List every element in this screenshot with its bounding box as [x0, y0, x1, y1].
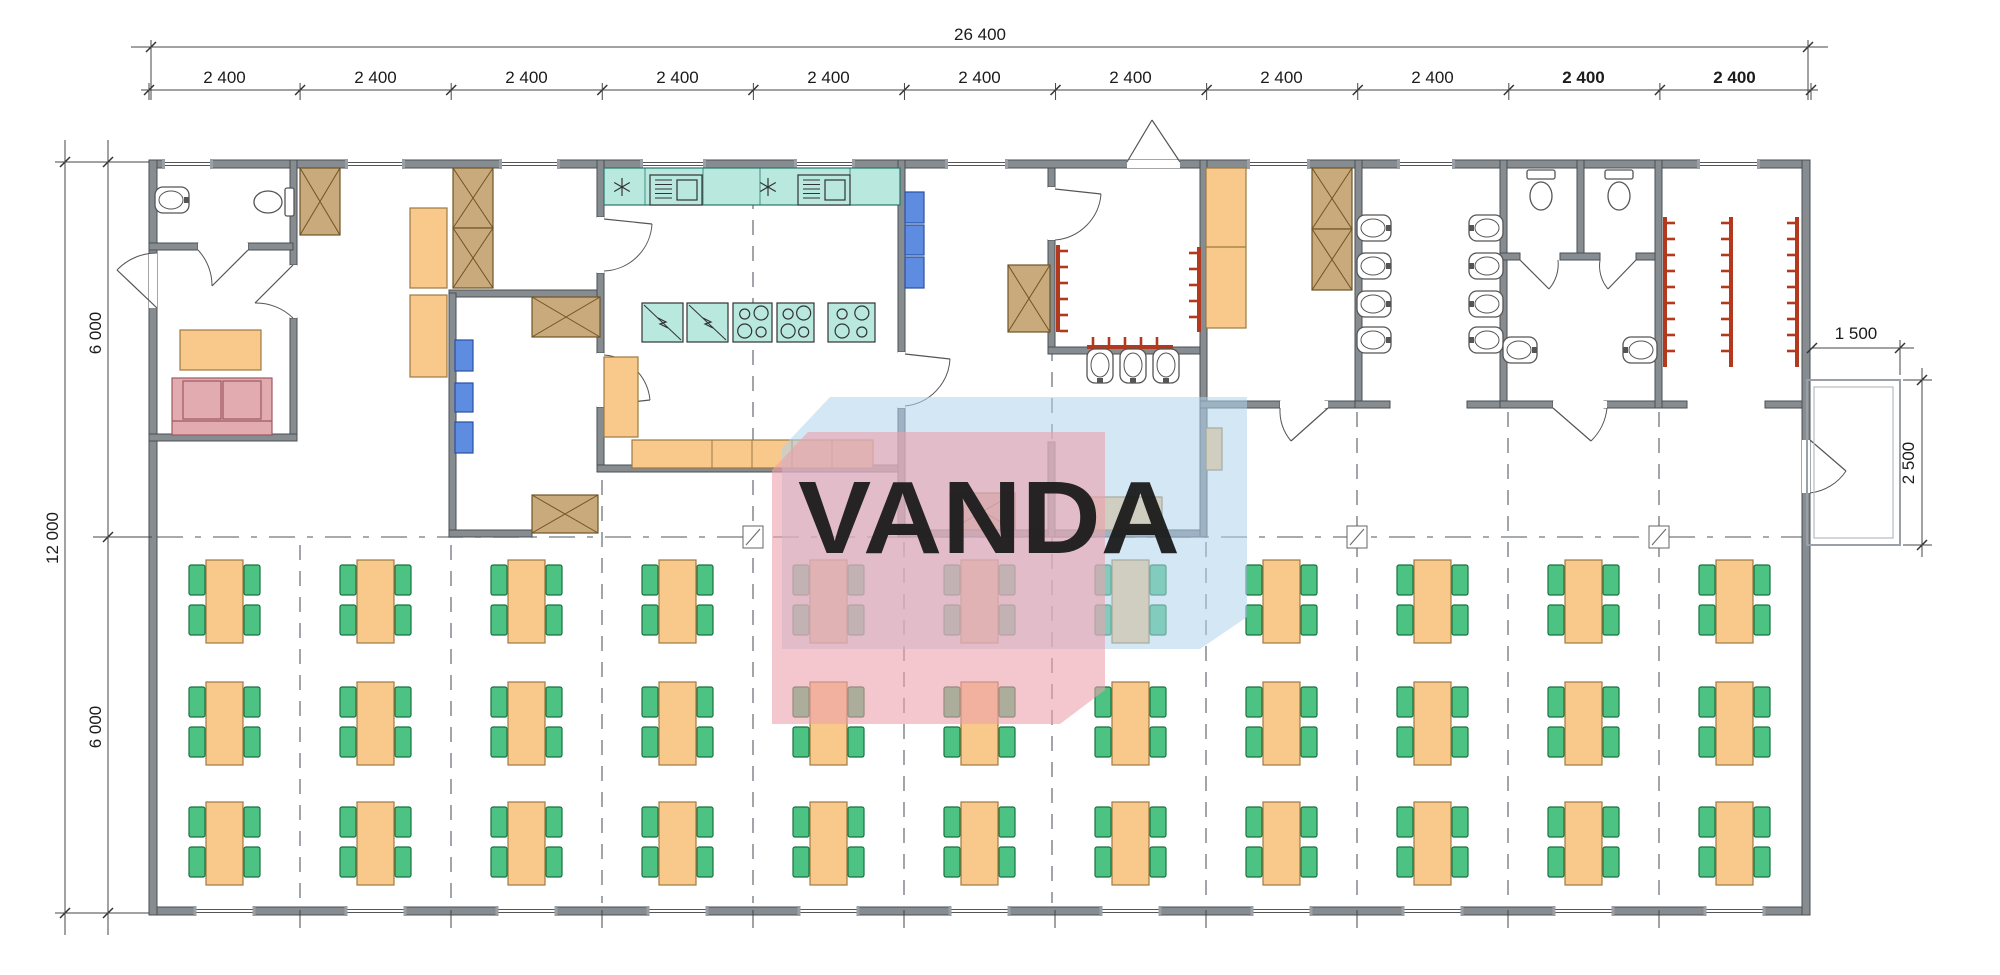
wall-segment — [1604, 401, 1687, 408]
washbasin-icon — [1357, 327, 1391, 353]
washbasin-icon — [1120, 349, 1146, 383]
chair-icon — [1397, 727, 1413, 757]
window-jamb — [1247, 159, 1250, 169]
window-gap — [502, 159, 557, 169]
door-swing-icon — [1291, 408, 1328, 441]
door-swing-icon — [1608, 260, 1636, 289]
chair-icon — [1699, 605, 1715, 635]
chair-icon — [1603, 605, 1619, 635]
chair-icon — [944, 807, 960, 837]
chair-icon — [793, 727, 809, 757]
sofa-icon — [223, 381, 261, 419]
chair-icon — [340, 807, 356, 837]
chair-icon — [491, 687, 507, 717]
door-gap — [149, 253, 157, 308]
chair-icon — [1754, 565, 1770, 595]
dining-table-icon — [1414, 682, 1451, 765]
wall-segment — [1636, 253, 1655, 260]
chair-icon — [1095, 807, 1111, 837]
chair-icon — [491, 847, 507, 877]
window-jamb — [949, 906, 952, 916]
cabinet-icon — [410, 295, 447, 377]
wall-segment — [1325, 401, 1358, 408]
chair-icon — [1246, 847, 1262, 877]
coat-rack-icon — [1056, 245, 1060, 332]
dim-label-module: 2 400 — [1713, 68, 1756, 87]
coat-rack-icon — [1729, 217, 1733, 367]
door-swing-icon — [255, 265, 293, 303]
chair-icon — [697, 565, 713, 595]
chair-icon — [1754, 847, 1770, 877]
window-jamb — [706, 906, 709, 916]
washbasin-icon — [1469, 215, 1503, 241]
dim-label-half-height: 6 000 — [86, 312, 105, 355]
toilet-icon — [254, 188, 294, 216]
chair-icon — [642, 807, 658, 837]
chair-icon — [1754, 727, 1770, 757]
chair-icon — [1301, 727, 1317, 757]
window-jamb — [194, 906, 197, 916]
chair-icon — [1246, 687, 1262, 717]
dining-table-icon — [206, 802, 243, 885]
door-gap — [290, 265, 297, 318]
washbasin-icon — [1503, 337, 1537, 363]
cabinet-icon — [1206, 168, 1246, 328]
door-gap — [597, 353, 604, 407]
door-gap — [198, 243, 248, 250]
chair-icon — [1603, 565, 1619, 595]
chair-icon — [491, 565, 507, 595]
washbasin-icon — [1357, 215, 1391, 241]
chair-icon — [1548, 565, 1564, 595]
chair-icon — [1246, 565, 1262, 595]
dining-table-icon — [1112, 802, 1149, 885]
dining-table-icon — [1414, 560, 1451, 643]
chair-icon — [1548, 605, 1564, 635]
window-gap — [1400, 159, 1452, 169]
chair-icon — [1397, 847, 1413, 877]
kitchen-counter — [604, 168, 900, 205]
chair-icon — [491, 727, 507, 757]
coat-rack-icon — [1663, 217, 1667, 367]
dining-table-icon — [1565, 802, 1602, 885]
dim-label-module: 2 400 — [1411, 68, 1454, 87]
chair-icon — [1699, 565, 1715, 595]
window-jamb — [945, 159, 948, 169]
wall-segment — [1655, 160, 1662, 408]
dim-label-module: 2 400 — [807, 68, 850, 87]
chair-icon — [244, 807, 260, 837]
chair-icon — [1452, 847, 1468, 877]
chair-icon — [697, 605, 713, 635]
window-gap — [1254, 906, 1310, 916]
dining-table-icon — [1716, 682, 1753, 765]
chair-icon — [546, 565, 562, 595]
chair-icon — [546, 847, 562, 877]
window-jamb — [555, 906, 558, 916]
window-gap — [801, 906, 857, 916]
wall-segment — [449, 293, 456, 537]
chair-icon — [999, 847, 1015, 877]
dim-label-module: 2 400 — [1109, 68, 1152, 87]
wall-segment — [597, 160, 604, 217]
chair-icon — [697, 807, 713, 837]
window-jamb — [1704, 906, 1707, 916]
dim-label-module: 2 400 — [203, 68, 246, 87]
cabinet-icon — [410, 208, 447, 288]
door-swing-icon — [1553, 408, 1591, 441]
chair-icon — [1699, 847, 1715, 877]
chair-icon — [944, 847, 960, 877]
chair-icon — [1095, 727, 1111, 757]
chair-icon — [1548, 807, 1564, 837]
door-swing-icon — [1152, 120, 1180, 162]
dining-table-icon — [659, 682, 696, 765]
floor-plan-canvas: VANDA 26 4002 4002 4002 4002 4002 4002 4… — [0, 0, 2000, 975]
dim-label-porch-depth: 2 500 — [1899, 442, 1918, 485]
chair-icon — [1548, 687, 1564, 717]
chair-icon — [944, 727, 960, 757]
door-swing-icon — [1520, 260, 1549, 289]
dim-label-porch-width: 1 500 — [1835, 324, 1878, 343]
window-jamb — [1461, 906, 1464, 916]
dining-table-icon — [508, 560, 545, 643]
window-jamb — [499, 159, 502, 169]
chair-icon — [642, 687, 658, 717]
chair-icon — [395, 847, 411, 877]
washbasin-icon — [1469, 291, 1503, 317]
wall-segment — [449, 290, 600, 297]
window-gap — [1103, 906, 1159, 916]
door-swing-icon — [1549, 260, 1558, 289]
window-jamb — [1553, 906, 1556, 916]
washbasin-icon — [1357, 291, 1391, 317]
door-gap — [1553, 401, 1607, 408]
chair-icon — [848, 807, 864, 837]
dim-label-module: 2 400 — [1260, 68, 1303, 87]
window-jamb — [402, 159, 405, 169]
dim-label-module: 2 400 — [958, 68, 1001, 87]
window-jamb — [345, 159, 348, 169]
window-jamb — [1005, 159, 1008, 169]
window-jamb — [557, 159, 560, 169]
wall-segment — [1355, 401, 1390, 408]
washbasin-icon — [1357, 253, 1391, 279]
dim-label-total-width: 26 400 — [954, 25, 1006, 44]
dining-table-icon — [508, 682, 545, 765]
door-swing-icon — [1810, 440, 1846, 471]
door-swing-icon — [212, 250, 248, 286]
door-swing-icon — [1055, 194, 1101, 240]
chair-icon — [491, 807, 507, 837]
dining-table-icon — [1263, 802, 1300, 885]
chair-icon — [697, 687, 713, 717]
chair-icon — [642, 847, 658, 877]
chair-icon — [1246, 807, 1262, 837]
locker-icon — [455, 383, 473, 412]
window-jamb — [345, 906, 348, 916]
washbasin-icon — [1469, 253, 1503, 279]
door-swing-icon — [905, 354, 950, 359]
chair-icon — [340, 565, 356, 595]
door-gap — [1048, 187, 1055, 240]
window-gap — [197, 906, 253, 916]
window-jamb — [1763, 906, 1766, 916]
dining-table-icon — [206, 560, 243, 643]
door-swing-icon — [1280, 408, 1291, 441]
chair-icon — [546, 687, 562, 717]
dining-table-icon — [659, 802, 696, 885]
chair-icon — [546, 807, 562, 837]
window-gap — [650, 906, 706, 916]
window-gap — [348, 159, 402, 169]
table-icon — [180, 330, 261, 370]
wall-segment — [1500, 160, 1507, 408]
window-jamb — [162, 159, 165, 169]
chair-icon — [1603, 727, 1619, 757]
dim-label-module: 2 400 — [656, 68, 699, 87]
dim-label-module: 2 400 — [354, 68, 397, 87]
chair-icon — [340, 687, 356, 717]
chair-icon — [395, 727, 411, 757]
porch-outline — [1807, 380, 1900, 545]
window-jamb — [1452, 159, 1455, 169]
wall-segment — [1560, 253, 1600, 260]
chair-icon — [1548, 847, 1564, 877]
chair-icon — [189, 565, 205, 595]
dining-table-icon — [1565, 682, 1602, 765]
wall-segment — [248, 243, 293, 250]
window-jamb — [210, 159, 213, 169]
wall-segment — [1577, 160, 1584, 260]
window-jamb — [1251, 906, 1254, 916]
chair-icon — [1452, 727, 1468, 757]
door-gap — [597, 217, 604, 273]
dining-table-icon — [659, 560, 696, 643]
chair-icon — [546, 727, 562, 757]
chair-icon — [1754, 807, 1770, 837]
wall-segment — [1467, 401, 1503, 408]
window-jamb — [1697, 159, 1700, 169]
chair-icon — [395, 807, 411, 837]
chair-icon — [1699, 727, 1715, 757]
chair-icon — [1397, 605, 1413, 635]
chair-icon — [1301, 687, 1317, 717]
window-gap — [165, 159, 210, 169]
dining-table-icon — [357, 560, 394, 643]
wall-segment — [1500, 401, 1553, 408]
window-jamb — [1757, 159, 1760, 169]
door-swing-icon — [1055, 189, 1101, 194]
chair-icon — [1699, 687, 1715, 717]
watermark-layer: VANDA — [772, 397, 1247, 724]
chair-icon — [244, 565, 260, 595]
chair-icon — [1603, 807, 1619, 837]
watermark-text: VANDA — [798, 460, 1180, 575]
chair-icon — [244, 605, 260, 635]
window-gap — [1250, 159, 1307, 169]
dining-table-icon — [1263, 560, 1300, 643]
fridge-icon — [905, 257, 924, 288]
wall-segment — [1355, 160, 1362, 408]
dining-table-icon — [1716, 802, 1753, 885]
window-gap — [499, 906, 555, 916]
chair-icon — [1301, 565, 1317, 595]
window-jamb — [1100, 906, 1103, 916]
fridge-icon — [905, 225, 924, 255]
chair-icon — [491, 605, 507, 635]
chair-icon — [1397, 807, 1413, 837]
washbasin-icon — [1087, 349, 1113, 383]
chair-icon — [1095, 847, 1111, 877]
chair-icon — [546, 605, 562, 635]
dining-table-icon — [1565, 560, 1602, 643]
dining-table-icon — [810, 802, 847, 885]
chair-icon — [1301, 807, 1317, 837]
dining-table-icon — [1263, 682, 1300, 765]
dim-label-half-height: 6 000 — [86, 706, 105, 749]
chair-icon — [340, 727, 356, 757]
fridge-icon — [905, 192, 924, 223]
chair-icon — [395, 565, 411, 595]
wall-segment — [597, 407, 604, 472]
chair-icon — [1754, 605, 1770, 635]
chair-icon — [340, 605, 356, 635]
window-jamb — [404, 906, 407, 916]
door-swing-icon — [1591, 408, 1607, 441]
porch-outline — [1814, 387, 1893, 538]
washbasin-icon — [155, 187, 189, 213]
wall-segment — [1048, 168, 1055, 187]
chair-icon — [1150, 847, 1166, 877]
chair-icon — [1397, 565, 1413, 595]
floor-plan-svg: VANDA 26 4002 4002 4002 4002 4002 4002 4… — [0, 0, 2000, 975]
window-jamb — [1402, 906, 1405, 916]
coat-rack-icon — [1197, 247, 1201, 332]
chair-icon — [793, 807, 809, 837]
chair-icon — [1452, 687, 1468, 717]
coat-rack-icon — [1795, 217, 1799, 367]
window-jamb — [857, 906, 860, 916]
chair-icon — [395, 605, 411, 635]
window-jamb — [496, 906, 499, 916]
chair-icon — [793, 847, 809, 877]
window-gap — [348, 906, 404, 916]
wall-segment — [290, 318, 297, 441]
window-gap — [1405, 906, 1461, 916]
dining-table-icon — [357, 682, 394, 765]
window-jamb — [1397, 159, 1400, 169]
chair-icon — [189, 687, 205, 717]
door-gap — [1280, 401, 1328, 408]
chair-icon — [1548, 727, 1564, 757]
dining-table-icon — [1112, 682, 1149, 765]
window-gap — [1700, 159, 1757, 169]
window-jamb — [1310, 906, 1313, 916]
chair-icon — [1452, 565, 1468, 595]
wall-segment — [449, 530, 532, 537]
toilet-icon — [1527, 170, 1555, 210]
chair-icon — [642, 727, 658, 757]
chair-icon — [1246, 605, 1262, 635]
wall-segment — [149, 243, 198, 250]
toilet-icon — [1605, 170, 1633, 210]
chair-icon — [697, 847, 713, 877]
dining-table-icon — [1414, 802, 1451, 885]
door-swing-icon — [604, 219, 652, 224]
window-gap — [1556, 906, 1612, 916]
chair-icon — [1150, 807, 1166, 837]
kitchen-table — [604, 357, 638, 437]
window-jamb — [253, 906, 256, 916]
washbasin-icon — [1623, 337, 1657, 363]
window-jamb — [798, 906, 801, 916]
washbasin-icon — [1153, 349, 1179, 383]
door-swing-icon — [1810, 471, 1846, 493]
wall-segment — [1765, 401, 1802, 408]
window-gap — [1707, 906, 1763, 916]
chair-icon — [1699, 807, 1715, 837]
chair-icon — [189, 727, 205, 757]
door-swing-icon — [255, 303, 293, 318]
chair-icon — [189, 605, 205, 635]
chair-icon — [189, 807, 205, 837]
chair-icon — [1301, 847, 1317, 877]
chair-icon — [1150, 687, 1166, 717]
chair-icon — [244, 687, 260, 717]
window-jamb — [1612, 906, 1615, 916]
chair-icon — [1246, 727, 1262, 757]
dim-label-module: 2 400 — [1562, 68, 1605, 87]
window-gap — [952, 906, 1008, 916]
dim-label-module: 2 400 — [505, 68, 548, 87]
locker-icon — [455, 340, 473, 371]
door-swing-icon — [1127, 120, 1152, 162]
dining-table-icon — [206, 682, 243, 765]
chair-icon — [1452, 605, 1468, 635]
chair-icon — [848, 847, 864, 877]
chair-icon — [999, 807, 1015, 837]
chair-icon — [1397, 687, 1413, 717]
chair-icon — [244, 847, 260, 877]
chair-icon — [642, 605, 658, 635]
door-swing-icon — [1600, 260, 1608, 289]
washbasin-icon — [1469, 327, 1503, 353]
window-jamb — [1159, 906, 1162, 916]
chair-icon — [395, 687, 411, 717]
chair-icon — [999, 727, 1015, 757]
chair-icon — [697, 727, 713, 757]
chair-icon — [1301, 605, 1317, 635]
dim-label-total-height: 12 000 — [43, 512, 62, 564]
chair-icon — [1150, 727, 1166, 757]
locker-icon — [455, 422, 473, 453]
dining-table-icon — [961, 802, 998, 885]
door-swing-icon — [198, 250, 212, 286]
window-jamb — [647, 906, 650, 916]
sofa-icon — [183, 381, 221, 419]
door-swing-icon — [604, 224, 652, 271]
door-gap — [1127, 160, 1180, 168]
chair-icon — [189, 847, 205, 877]
chair-icon — [1603, 687, 1619, 717]
window-jamb — [1307, 159, 1310, 169]
chair-icon — [244, 727, 260, 757]
chair-icon — [848, 727, 864, 757]
dining-table-icon — [357, 802, 394, 885]
chair-icon — [1603, 847, 1619, 877]
dining-table-icon — [508, 802, 545, 885]
